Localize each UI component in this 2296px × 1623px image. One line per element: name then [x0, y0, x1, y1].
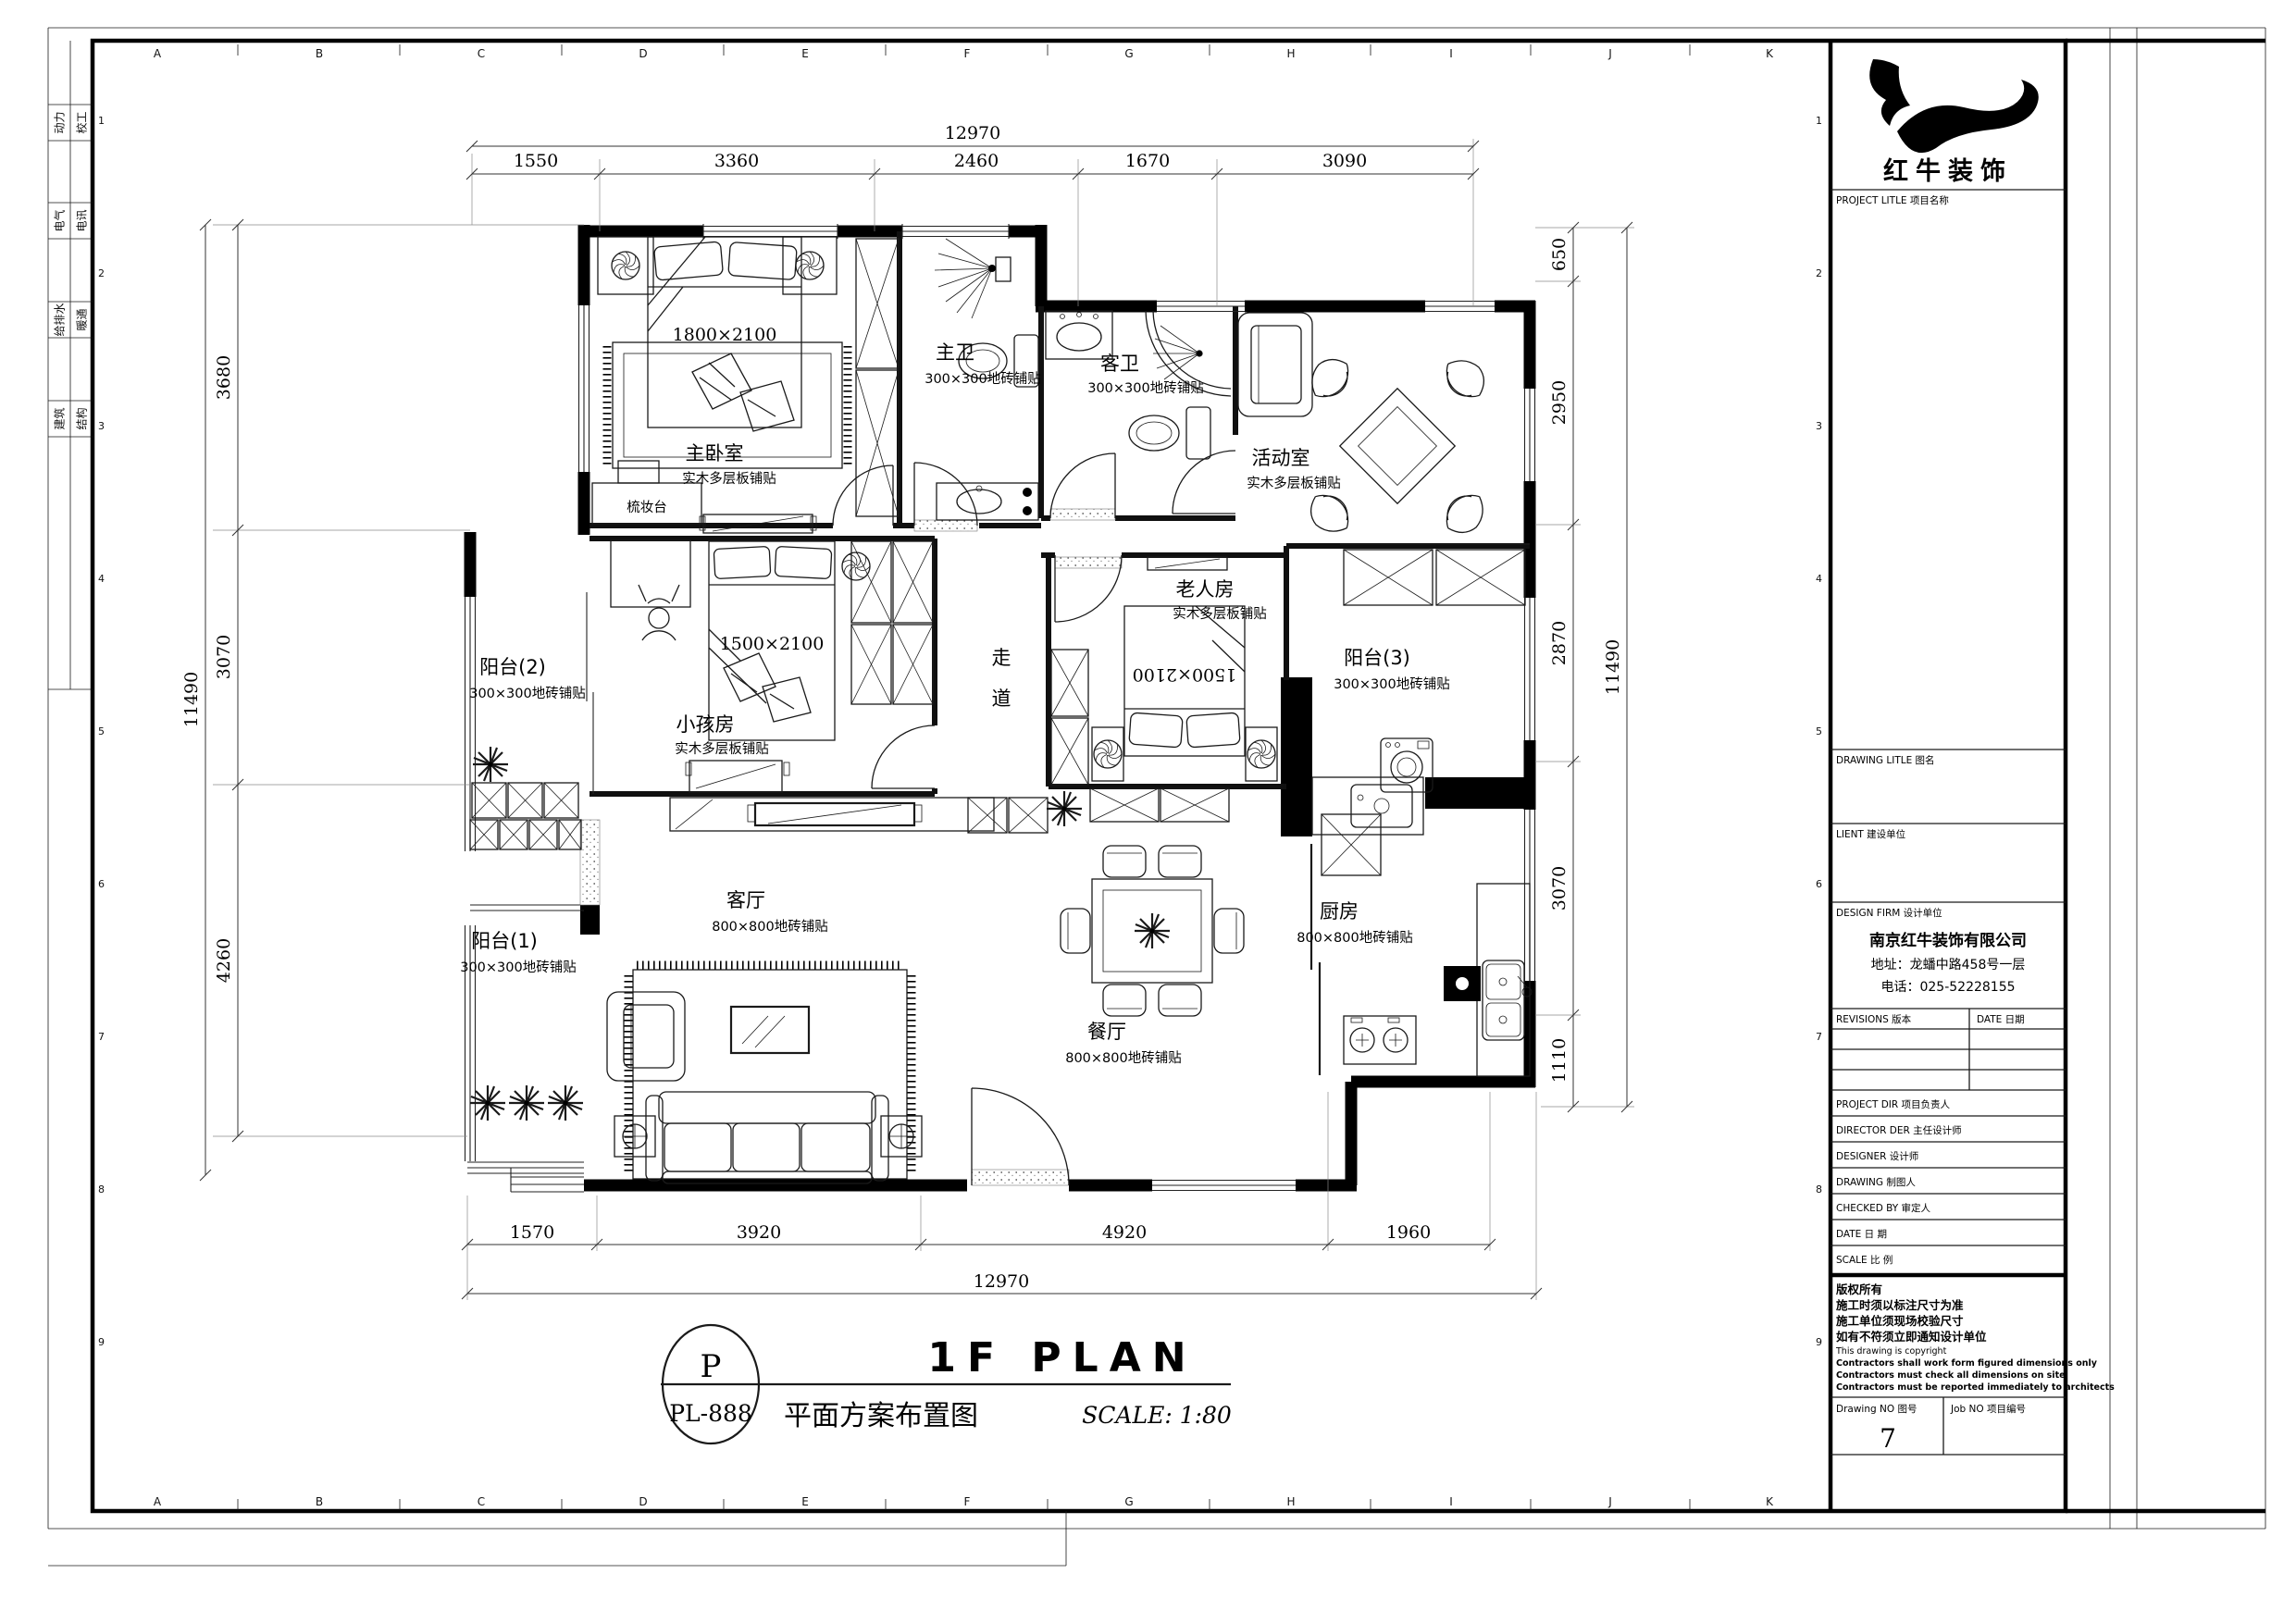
row-number: 7 — [1816, 1031, 1822, 1043]
grid-letter: G — [1124, 47, 1133, 60]
project-dir-label: PROJECT DIR 项目负责人 — [1836, 1098, 1951, 1110]
drawing-person-label: DRAWING 制图人 — [1836, 1176, 1916, 1188]
grid-letter: D — [639, 47, 647, 60]
row-number: 9 — [1816, 1336, 1822, 1348]
row-number: 3 — [98, 420, 105, 432]
stamp-code: PL-888 — [669, 1400, 752, 1427]
room-finish-guest-bath: 300×300地砖铺贴 — [1087, 380, 1204, 396]
grid-letters-top: A B C D E F G H I J K — [154, 44, 1774, 60]
room-finish-balcony2: 300×300地砖铺贴 — [469, 686, 586, 701]
bed-size-label: 1500×2100 — [720, 634, 825, 654]
dim-left-3: 4260 — [214, 938, 234, 983]
ceiling-fan-icon — [842, 552, 870, 580]
room-finish-dining: 800×800地砖铺贴 — [1065, 1050, 1182, 1066]
title-block: 红牛装饰 PROJECT LITLE 项目名称 DRAWING LITLE 图名… — [1831, 59, 2115, 1455]
room-finish-elder-room: 实木多层板铺贴 — [1173, 605, 1267, 622]
row-number: 8 — [98, 1183, 105, 1196]
dim-bottom-1: 1570 — [510, 1222, 554, 1243]
plant-icon — [509, 1085, 544, 1121]
grid-letter: F — [964, 1495, 971, 1508]
plan-scale: SCALE: 1:80 — [1082, 1402, 1232, 1429]
row-number: 1 — [98, 115, 105, 127]
wall-pier — [1425, 777, 1530, 809]
ceiling-fan-icon — [796, 252, 824, 279]
grid-letter: I — [1449, 1495, 1453, 1508]
discipline-electrical: 电气 — [53, 209, 67, 231]
discipline-structure: 结构 — [75, 407, 89, 429]
row-number: 5 — [98, 725, 105, 737]
dim-top-4: 1670 — [1125, 151, 1170, 171]
grid-letter: E — [801, 47, 809, 60]
project-title-label: PROJECT LITLE 项目名称 — [1836, 194, 1949, 206]
wall-pier — [1281, 677, 1312, 836]
room-finish-balcony1: 300×300地砖铺贴 — [460, 960, 577, 975]
row-number: 2 — [98, 267, 105, 279]
ceiling-fan-icon — [612, 252, 639, 279]
company-logo-text: 红牛装饰 — [1883, 156, 2013, 186]
plan-title: 1F PLAN — [927, 1334, 1197, 1381]
floor-plan-canvas: 动力 校工 电气 电讯 给排水 暖通 建筑 结构 A B C D E F G H… — [0, 0, 2296, 1623]
ceiling-fan-icon — [1247, 740, 1275, 768]
discipline-telecom: 电讯 — [76, 209, 89, 231]
job-no-label: Job NO 项目编号 — [1950, 1403, 2026, 1415]
discipline-ladder: 动力 校工 电气 电讯 给排水 暖通 建筑 结构 — [48, 41, 93, 689]
copyright-line: Contractors shall work form figured dime… — [1836, 1358, 2098, 1369]
grid-letter: J — [1607, 1495, 1612, 1508]
room-finish-activity-room: 实木多层板铺贴 — [1247, 475, 1341, 491]
designer-label: DESIGNER 设计师 — [1836, 1150, 1918, 1162]
grid-letter: J — [1607, 47, 1612, 60]
dim-right-2: 2950 — [1549, 380, 1570, 425]
room-label-elder-room: 老人房 — [1176, 578, 1235, 601]
row-number: 6 — [1816, 878, 1822, 890]
room-finish-master-bedroom: 实木多层板铺贴 — [682, 470, 776, 487]
grid-letter: C — [478, 47, 485, 60]
discipline-hvac: 暖通 — [76, 308, 89, 330]
room-label-kids-room: 小孩房 — [676, 713, 735, 736]
dim-top-2: 3360 — [714, 151, 759, 171]
room-label-master-bath: 主卫 — [936, 341, 974, 364]
date-label: DATE 日 期 — [1836, 1229, 1887, 1240]
room-label-balcony1: 阳台(1) — [471, 930, 538, 952]
room-label-living: 客厅 — [726, 889, 765, 911]
dimensions-bottom: 1570 3920 4920 1960 12970 — [462, 1092, 1542, 1300]
room-finish-kitchen: 800×800地砖铺贴 — [1297, 930, 1413, 946]
plant-icon — [548, 1085, 583, 1121]
room-label-dining: 餐厅 — [1087, 1021, 1126, 1043]
room-label-kitchen: 厨房 — [1320, 900, 1359, 923]
grid-letter: H — [1286, 47, 1295, 60]
dim-top-5: 3090 — [1322, 151, 1367, 171]
dining-furniture — [1061, 846, 1244, 1016]
grid-letter: K — [1766, 47, 1774, 60]
copyright-line: Contractors must check all dimensions on… — [1836, 1370, 2066, 1381]
room-finish-kids-room: 实木多层板铺贴 — [675, 740, 769, 757]
grid-numbers-right: 1 2 3 4 5 6 7 8 9 — [1816, 115, 1822, 1348]
company-address: 地址：龙蟠中路458号一层 — [1871, 958, 2026, 973]
dim-left-total: 11490 — [181, 672, 202, 727]
drawing-title-label: DRAWING LITLE 图名 — [1836, 754, 1935, 766]
director-label: DIRECTOR DER 主任设计师 — [1836, 1124, 1962, 1136]
plan-subtitle: 平面方案布置图 — [784, 1400, 978, 1432]
dim-top-1: 1550 — [514, 151, 558, 171]
bed-size-label: 1500×2100 — [1133, 664, 1237, 685]
plant-icon — [473, 747, 508, 782]
grid-letter: E — [801, 1495, 809, 1508]
row-number: 5 — [1816, 725, 1822, 737]
grid-numbers-left: 1 2 3 4 5 6 7 8 9 — [98, 115, 105, 1348]
row-number: 4 — [1816, 573, 1822, 585]
grid-letter: B — [316, 47, 323, 60]
grid-letter: I — [1449, 47, 1453, 60]
row-number: 4 — [98, 573, 105, 585]
company-name: 南京红牛装饰有限公司 — [1869, 931, 2027, 950]
grid-letter: B — [316, 1495, 323, 1508]
drawing-no-value: 7 — [1880, 1423, 1896, 1454]
kids-room-furniture — [611, 540, 933, 792]
copyright-line: 版权所有 — [1836, 1282, 1882, 1296]
company-logo-icon — [1869, 59, 2039, 153]
grid-letter: H — [1286, 1495, 1295, 1508]
dim-top-3: 2460 — [954, 151, 999, 171]
dim-right-total: 11490 — [1603, 639, 1623, 695]
row-number: 9 — [98, 1336, 105, 1348]
dim-bottom-2: 3920 — [737, 1222, 781, 1243]
discipline-architecture: 建筑 — [53, 407, 67, 429]
dim-left-1: 3680 — [214, 355, 234, 400]
grid-letter: D — [639, 1495, 647, 1508]
copyright-line: 施工单位须现场校验尺寸 — [1836, 1314, 1964, 1328]
dim-left-2: 3070 — [214, 635, 234, 679]
dimensions-right: 650 2950 2870 3070 1110 11490 — [1535, 222, 1634, 1112]
discipline-power: 动力 — [54, 111, 67, 133]
room-label-balcony2: 阳台(2) — [479, 656, 546, 678]
balcony3-fixtures — [1312, 738, 1433, 835]
living-room-furniture — [607, 798, 994, 1183]
threshold — [972, 1170, 1069, 1185]
grid-letter: A — [154, 47, 162, 60]
bed-size-label: 1800×2100 — [673, 325, 777, 345]
grid-letter: F — [964, 47, 971, 60]
ceiling-fan-icon — [1094, 740, 1122, 768]
grid-letters-bottom: A B C D E F G H I J K — [154, 1495, 1774, 1510]
row-number: 1 — [1816, 115, 1822, 127]
dimensions-top: 12970 1550 3360 2460 1670 3090 — [466, 123, 1479, 306]
dim-bottom-4: 1960 — [1386, 1222, 1431, 1243]
copyright-line: 如有不符须立即通知设计单位 — [1836, 1330, 1987, 1344]
copyright-line: Contractors must be reported immediately… — [1836, 1382, 2115, 1393]
dim-bottom-total: 12970 — [974, 1271, 1029, 1292]
discipline-plumbing: 给排水 — [54, 303, 67, 336]
client-label: LIENT 建设单位 — [1836, 828, 1906, 840]
room-label-master-bedroom: 主卧室 — [686, 442, 744, 465]
grid-letter: A — [154, 1495, 162, 1508]
master-bedroom-furniture — [592, 237, 899, 533]
room-label-corridor-1: 走 — [992, 647, 1011, 669]
dim-right-3: 2870 — [1549, 621, 1570, 665]
dim-right-1: 650 — [1549, 238, 1570, 271]
plant-icon — [1047, 791, 1082, 826]
plant-icon — [1135, 913, 1170, 948]
room-finish-master-bath: 300×300地砖铺贴 — [925, 371, 1041, 387]
threshold — [914, 520, 977, 531]
room-label-balcony3: 阳台(3) — [1344, 647, 1410, 669]
entry-cabinet — [968, 798, 1048, 833]
dim-top-total: 12970 — [945, 123, 1000, 143]
threshold — [1050, 509, 1115, 520]
room-label-activity-room: 活动室 — [1252, 447, 1310, 469]
checked-by-label: CHECKED BY 审定人 — [1836, 1202, 1931, 1214]
row-number: 8 — [1816, 1183, 1822, 1196]
balcony2-fixtures — [470, 747, 581, 849]
drawing-sheet: 动力 校工 电气 电讯 给排水 暖通 建筑 结构 A B C D E F G H… — [0, 0, 2296, 1623]
threshold — [1055, 557, 1122, 568]
wall-pier — [580, 905, 600, 935]
stamp-letter: P — [701, 1348, 722, 1385]
company-phone: 电话：025-52228155 — [1880, 980, 2015, 995]
row-number: 3 — [1816, 420, 1822, 432]
dim-right-5: 1110 — [1549, 1038, 1570, 1083]
row-number: 6 — [98, 878, 105, 890]
date-column-label: DATE 日期 — [1977, 1014, 2025, 1025]
copyright-line: 施工时须以标注尺寸为准 — [1836, 1298, 1964, 1312]
dim-right-4: 3070 — [1549, 866, 1570, 911]
balcony1-fixtures — [470, 1085, 583, 1121]
drawing-no-label: Drawing NO 图号 — [1836, 1404, 1917, 1415]
design-firm-label: DESIGN FIRM 设计单位 — [1836, 907, 1942, 919]
threshold — [580, 820, 600, 905]
room-finish-living: 800×800地砖铺贴 — [712, 919, 828, 935]
row-number: 7 — [98, 1031, 105, 1043]
floor-plan: 1800×2100 主卧室 实木多层板铺贴 梳妆台 主卫 300×300地砖铺贴… — [181, 123, 1634, 1300]
discipline-proof: 校工 — [75, 111, 89, 133]
grid-letter: K — [1766, 1495, 1774, 1508]
room-label-guest-bath: 客卫 — [1100, 353, 1139, 375]
copyright-line: This drawing is copyright — [1835, 1346, 1947, 1357]
dim-bottom-3: 4920 — [1102, 1222, 1147, 1243]
drawing-footer: P PL-888 1F PLAN 平面方案布置图 SCALE: 1:80 — [661, 1325, 1232, 1443]
grid-letter: G — [1124, 1495, 1133, 1508]
row-number: 2 — [1816, 267, 1822, 279]
room-label-corridor-2: 道 — [992, 688, 1011, 710]
dresser-label: 梳妆台 — [627, 500, 667, 515]
revisions-label: REVISIONS 版本 — [1836, 1013, 1912, 1025]
room-finish-balcony3: 300×300地砖铺贴 — [1334, 676, 1450, 692]
scale-label: SCALE 比 例 — [1836, 1254, 1893, 1266]
grid-letter: C — [478, 1495, 485, 1508]
